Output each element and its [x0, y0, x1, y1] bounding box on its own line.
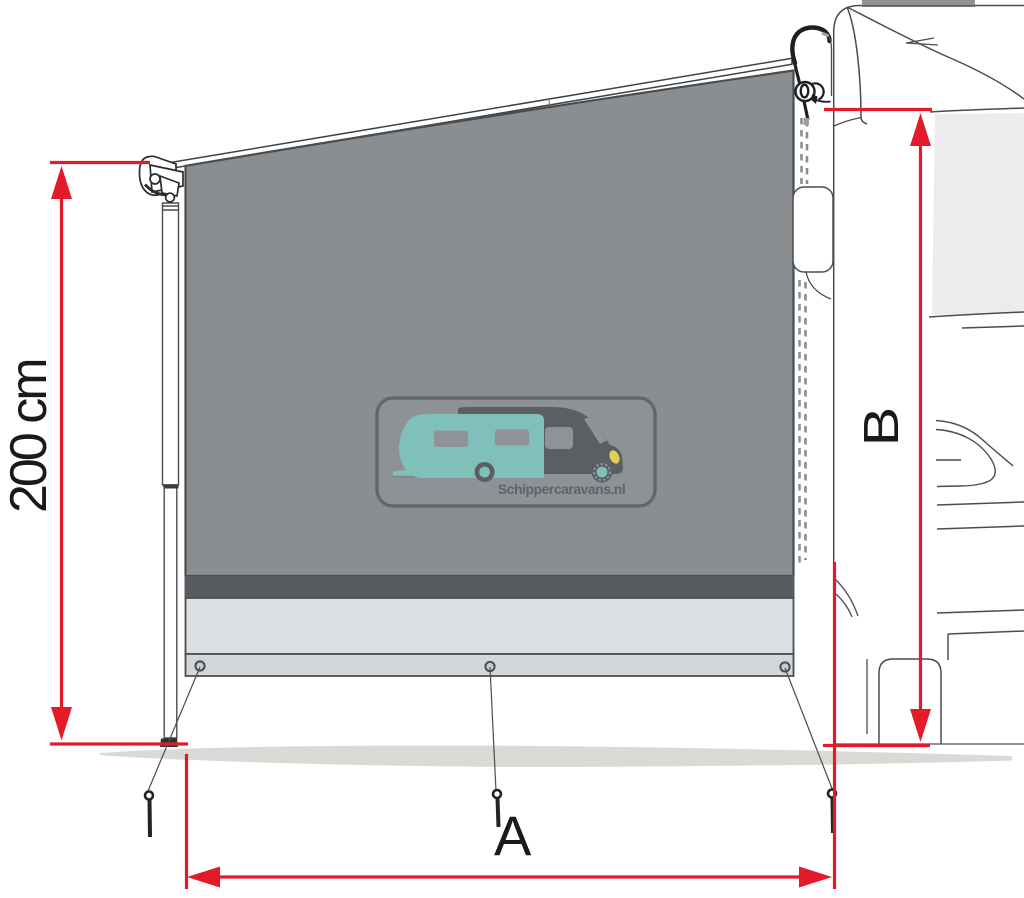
svg-text:A: A: [494, 804, 532, 867]
svg-text:Schippercaravans.nl: Schippercaravans.nl: [498, 482, 625, 497]
svg-text:200 cm: 200 cm: [0, 360, 58, 513]
svg-text:B: B: [854, 407, 909, 447]
